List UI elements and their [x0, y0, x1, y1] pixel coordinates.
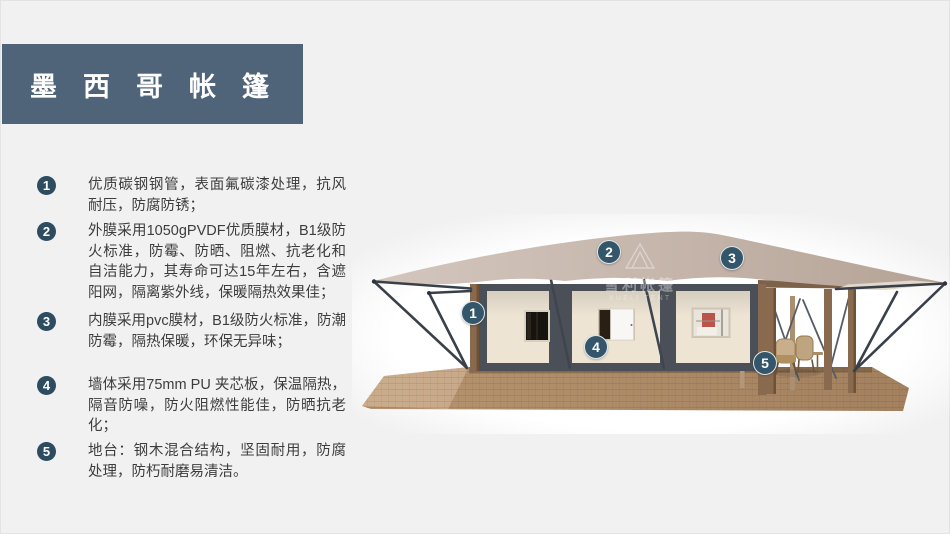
feature-item-4: 4 墙体采用75mm PU 夹芯板，保温隔热，隔音防噪，防火阻燃性能佳，防晒抗老…: [37, 375, 347, 437]
feature-number: 3: [43, 314, 50, 329]
feature-text: 内膜采用pvc膜材，B1级防火标准，防潮防霉，隔热保暖，环保无异味；: [88, 311, 346, 352]
feature-number: 5: [43, 444, 50, 459]
watermark-cn: 雪利帐篷: [604, 276, 676, 294]
product-slide: { "title": { "text": "墨西哥帐篷" }, "feature…: [0, 0, 950, 534]
callout-4: 4: [584, 335, 608, 359]
callout-number: 5: [761, 355, 769, 371]
feature-number: 1: [43, 178, 50, 193]
feature-number: 4: [43, 378, 50, 393]
feature-number-badge: 5: [37, 442, 56, 461]
feature-number-badge: 2: [37, 222, 56, 241]
feature-number-badge: 1: [37, 176, 56, 195]
callout-number: 1: [469, 305, 477, 321]
callout-1: 1: [461, 301, 485, 325]
feature-text: 墙体采用75mm PU 夹芯板，保温隔热，隔音防噪，防火阻燃性能佳，防晒抗老化；: [88, 375, 346, 437]
window-cabin-3: [692, 308, 731, 339]
corner-post-right: [758, 284, 766, 395]
callout-number: 2: [605, 244, 613, 260]
callout-number: 3: [728, 250, 736, 266]
door-cabin-2: [598, 309, 635, 341]
feature-text: 优质碳钢钢管，表面氟碳漆处理，抗风耐压，防腐防锈；: [88, 175, 346, 216]
feature-item-1: 1 优质碳钢钢管，表面氟碳漆处理，抗风耐压，防腐防锈；: [37, 175, 347, 216]
callout-number: 4: [592, 339, 600, 355]
title-banner: 墨西哥帐篷: [2, 44, 303, 124]
window-cabin-1: [524, 310, 550, 342]
feature-item-5: 5 地台：钢木混合结构，坚固耐用，防腐处理，防朽耐磨易清洁。: [37, 441, 347, 482]
feature-number-badge: 4: [37, 376, 56, 395]
feature-item-2: 2 外膜采用1050gPVDF优质膜材，B1级防火标准，防霉、防晒、阻燃、抗老化…: [37, 221, 347, 303]
feature-text: 地台：钢木混合结构，坚固耐用，防腐处理，防朽耐磨易清洁。: [88, 441, 346, 482]
feature-number-badge: 3: [37, 312, 56, 331]
feature-text: 外膜采用1050gPVDF优质膜材，B1级防火标准，防霉、防晒、阻燃、抗老化和自…: [88, 221, 346, 303]
callout-3: 3: [720, 246, 744, 270]
feature-item-3: 3 内膜采用pvc膜材，B1级防火标准，防潮防霉，隔热保暖，环保无异味；: [37, 311, 347, 352]
tent-illustration: 雪利帐篷 XUELI TENT: [352, 213, 950, 435]
page-title: 墨西哥帐篷: [2, 65, 295, 104]
feature-number: 2: [43, 224, 50, 239]
callout-2: 2: [597, 240, 621, 264]
watermark-en: XUELI TENT: [609, 295, 671, 302]
callout-5: 5: [753, 351, 777, 375]
tent-render: 雪利帐篷 XUELI TENT 1 2 3 4 5: [352, 213, 950, 435]
